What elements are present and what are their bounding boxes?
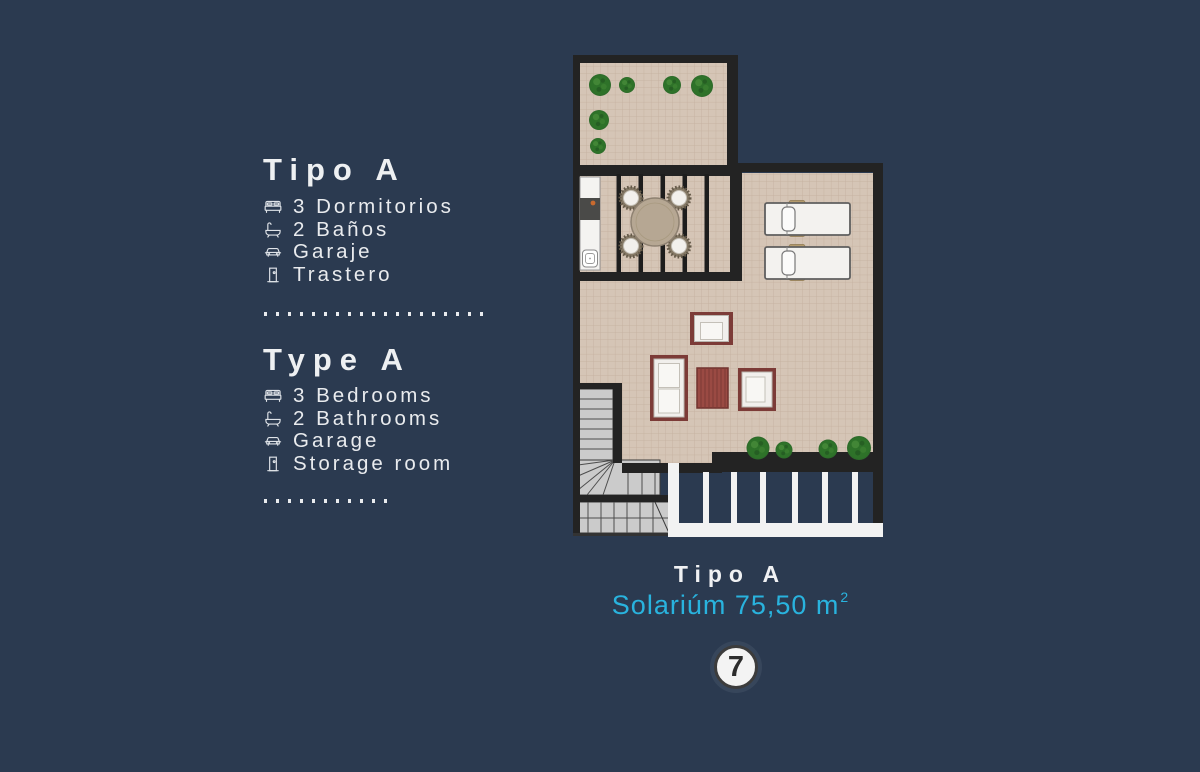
list-item: 2 Bathrooms xyxy=(263,408,523,431)
feature-list-es: 3 Dormitorios 2 Baños xyxy=(263,196,523,286)
list-item: Garage xyxy=(263,430,523,453)
sun-lounger xyxy=(765,201,850,237)
feature-label: 2 Baños xyxy=(293,218,389,242)
unit-number-badge: 7 xyxy=(714,645,758,689)
car-icon xyxy=(263,242,283,262)
feature-label: 3 Bedrooms xyxy=(293,384,434,408)
sofa xyxy=(650,355,688,421)
armchair xyxy=(738,368,776,411)
area-sup: 2 xyxy=(840,589,849,605)
feature-label: Garaje xyxy=(293,240,373,264)
feature-label: 3 Dormitorios xyxy=(293,195,454,219)
area-text: Solariúm 75,50 m xyxy=(612,590,840,620)
sun-lounger xyxy=(765,245,850,281)
feature-label: Trastero xyxy=(293,263,393,287)
bath-icon xyxy=(263,409,283,429)
feature-label: 2 Bathrooms xyxy=(293,407,442,431)
feature-label: Storage room xyxy=(293,452,453,476)
title-en: Type A xyxy=(263,342,411,378)
dining-set xyxy=(620,187,690,257)
railing xyxy=(668,463,883,537)
kitchen-counter xyxy=(580,177,600,270)
bed-icon xyxy=(263,386,283,406)
door-icon xyxy=(263,265,283,285)
feature-list-en: 3 Bedrooms 2 Bathrooms xyxy=(263,385,523,475)
plan-area: Solariúm 75,50 m2 xyxy=(565,590,895,621)
floor-plan xyxy=(565,52,885,542)
dining-table xyxy=(631,198,679,246)
dotted-divider xyxy=(264,312,486,316)
bed-icon xyxy=(263,197,283,217)
car-icon xyxy=(263,431,283,451)
bath-icon xyxy=(263,220,283,240)
list-item: 3 Bedrooms xyxy=(263,385,523,408)
title-es: Tipo A xyxy=(263,152,406,188)
door-icon xyxy=(263,454,283,474)
list-item: 3 Dormitorios xyxy=(263,196,523,219)
armchair xyxy=(690,312,733,345)
poster: Tipo A 3 Dormitorios xyxy=(0,0,1200,772)
list-item: Garaje xyxy=(263,241,523,264)
plan-title: Tipo A xyxy=(565,561,895,588)
feature-label: Garage xyxy=(293,429,379,453)
list-item: 2 Baños xyxy=(263,219,523,242)
list-item: Trastero xyxy=(263,264,523,287)
coffee-table xyxy=(697,368,728,408)
list-item: Storage room xyxy=(263,453,523,476)
dotted-divider xyxy=(264,499,389,503)
